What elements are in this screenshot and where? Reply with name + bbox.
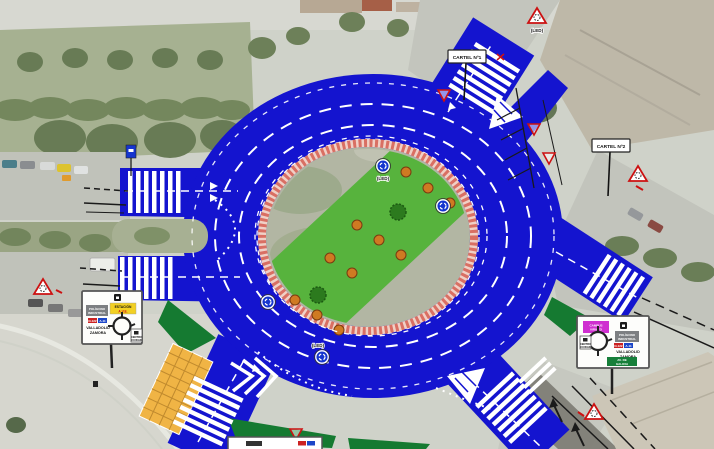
cartel-1-label: CARTEL Nº1 — [453, 55, 482, 61]
industrial-line-2: INDUSTRIAL — [88, 311, 106, 315]
street-line-2: GALICIA — [616, 362, 629, 366]
centro-line-2: CIUDAD — [131, 338, 142, 342]
plan-canvas: (LED) (LED) (LED) — [0, 0, 714, 449]
destination-line-2: ZAMORA — [90, 331, 107, 335]
road-number-blue: A-11 — [99, 319, 106, 323]
roundabout-signage-plan: (LED) (LED) (LED) — [0, 0, 714, 449]
led-label: (LED) — [377, 176, 390, 181]
direction-board-bottom — [228, 437, 322, 449]
roundabout-circle-sign-icon — [436, 199, 451, 214]
tree-icon — [310, 287, 326, 303]
road-shield-red — [298, 441, 306, 446]
detour-line-2: A.V.E. — [118, 309, 127, 313]
pictogram-icon — [583, 338, 588, 342]
road-number-red: N-122 — [614, 344, 623, 348]
tree-icon — [390, 204, 406, 220]
detour-line-1: ESTACIÓN — [115, 304, 132, 309]
destination-line-1: VALLADOLID — [86, 326, 110, 330]
roundabout-circle-sign-icon — [315, 350, 330, 365]
destination-line-1: VALLADOLID — [616, 350, 640, 354]
road-shield-blue — [307, 441, 315, 446]
pictogram-icon — [134, 331, 139, 335]
roundabout-circle-sign-icon — [261, 295, 276, 310]
map-symbol — [93, 381, 98, 387]
centro-line-2: CIUDAD — [580, 345, 591, 349]
led-label: (LED) — [312, 343, 325, 348]
road-number-blue: A-11 — [625, 344, 632, 348]
road-number-red: N-122 — [88, 319, 97, 323]
cartel-2-label: CARTEL Nº2 — [597, 144, 626, 150]
industrial-line-2: INDUSTRIAL — [618, 337, 636, 341]
led-label: (LED) — [531, 28, 544, 33]
roundabout-circle-sign-icon — [376, 159, 391, 174]
